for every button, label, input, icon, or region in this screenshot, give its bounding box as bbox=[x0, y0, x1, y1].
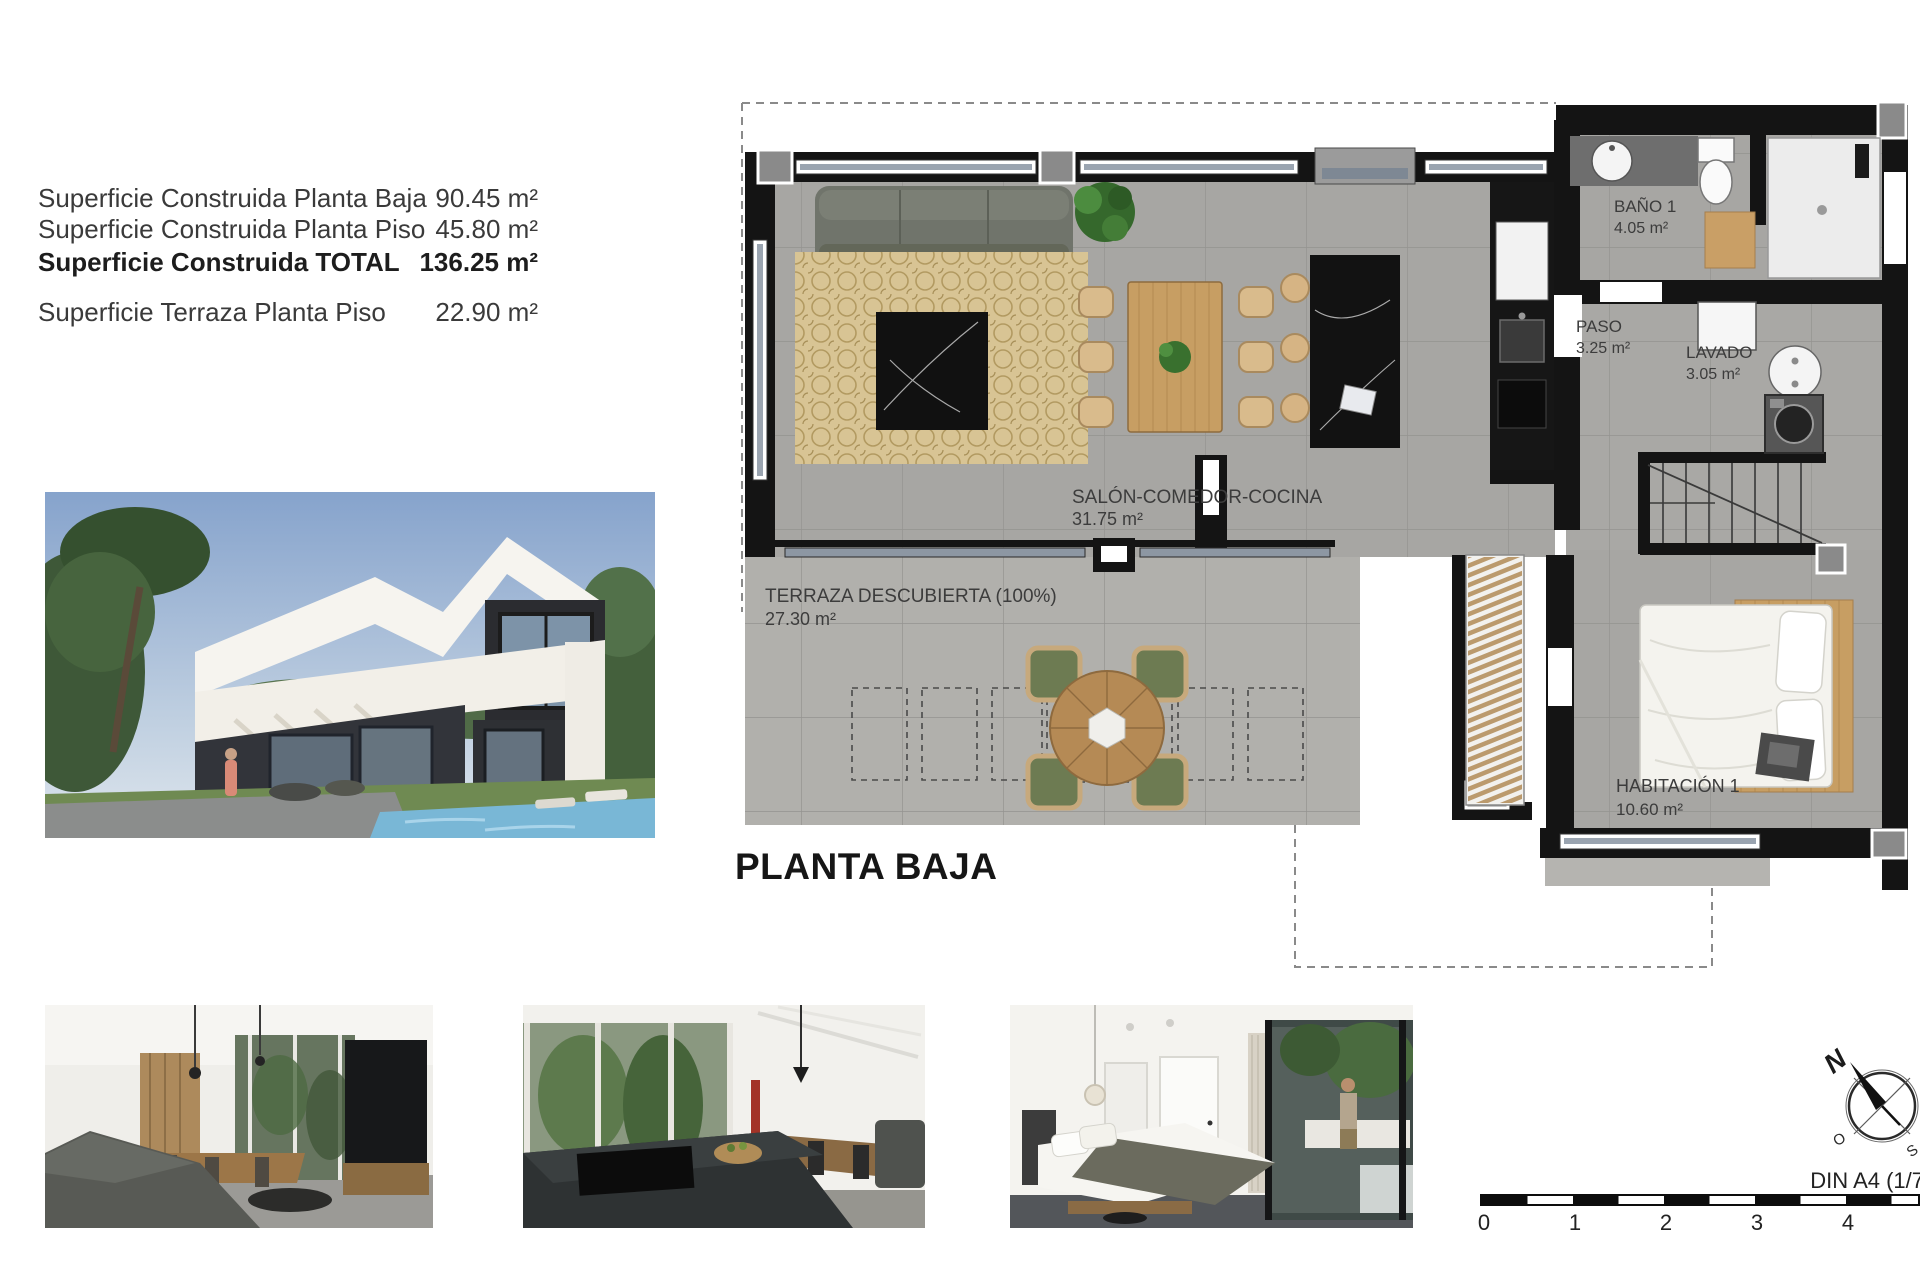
scale-tick: 2 bbox=[1660, 1210, 1672, 1236]
kitchen-photo bbox=[523, 1005, 925, 1228]
plan-title: PLANTA BAJA bbox=[735, 846, 997, 888]
compass-south-label: S bbox=[1904, 1141, 1920, 1161]
scale-bar: DIN A4 (1/7 0 1 2 3 4 bbox=[1480, 1168, 1920, 1238]
brochure-page: Superficie Construida Planta Baja 90.45 … bbox=[0, 0, 1920, 1280]
villa-exterior-illustration bbox=[45, 492, 655, 838]
surface-value: 136.25 m² bbox=[419, 247, 538, 278]
surface-label: Superficie Construida Planta Piso bbox=[38, 214, 425, 245]
compass-icon: N O S bbox=[1812, 1040, 1920, 1162]
room-area-paso: 3.25 m² bbox=[1576, 340, 1631, 357]
scale-tick: 0 bbox=[1478, 1210, 1490, 1236]
room-label-bano: BAÑO 1 bbox=[1614, 197, 1676, 216]
scale-bar-graphic bbox=[1480, 1194, 1920, 1206]
surface-label: Superficie Construida TOTAL bbox=[38, 247, 400, 278]
dining-table bbox=[1079, 282, 1273, 432]
room-label-salon: SALÓN-COMEDOR-COCINA bbox=[1072, 486, 1323, 508]
louver-screen bbox=[1466, 555, 1524, 805]
surface-table: Superficie Construida Planta Baja 90.45 … bbox=[38, 183, 538, 328]
table-row: Superficie Terraza Planta Piso 22.90 m² bbox=[38, 297, 538, 328]
room-label-lavado: LAVADO bbox=[1686, 343, 1752, 362]
scale-tick: 1 bbox=[1569, 1210, 1581, 1236]
table-row: Superficie Construida Planta Baja 90.45 … bbox=[38, 183, 538, 214]
living-room-illustration bbox=[45, 1005, 433, 1228]
surface-value: 45.80 m² bbox=[435, 214, 538, 245]
surface-value: 22.90 m² bbox=[435, 297, 538, 328]
room-label-habitacion: HABITACIÓN 1 bbox=[1616, 775, 1740, 796]
bedroom-illustration bbox=[1010, 1005, 1413, 1228]
coffee-table bbox=[876, 312, 988, 430]
compass-north-label: N bbox=[1818, 1043, 1852, 1079]
surface-label: Superficie Construida Planta Baja bbox=[38, 183, 427, 214]
room-area-terraza: 27.30 m² bbox=[765, 609, 836, 629]
table-row: Superficie Construida Planta Piso 45.80 … bbox=[38, 214, 538, 245]
kitchen-counter bbox=[1490, 182, 1554, 470]
surface-label: Superficie Terraza Planta Piso bbox=[38, 297, 386, 328]
kitchen-island bbox=[1281, 255, 1400, 448]
scale-tick: 4 bbox=[1842, 1210, 1854, 1236]
kitchen-illustration bbox=[523, 1005, 925, 1228]
living-room-photo bbox=[45, 1005, 433, 1228]
room-area-bano: 4.05 m² bbox=[1614, 220, 1669, 237]
compass-west-label: O bbox=[1830, 1129, 1849, 1150]
table-row-total: Superficie Construida TOTAL 136.25 m² bbox=[38, 247, 538, 278]
room-area-salon: 31.75 m² bbox=[1072, 509, 1143, 529]
surface-value: 90.45 m² bbox=[435, 183, 538, 214]
villa-exterior-photo bbox=[45, 492, 655, 838]
scale-tick: 3 bbox=[1751, 1210, 1763, 1236]
bedroom-furniture bbox=[1640, 600, 1853, 792]
room-area-habitacion: 10.60 m² bbox=[1616, 800, 1683, 819]
room-label-paso: PASO bbox=[1576, 317, 1622, 336]
scale-format-label: DIN A4 (1/7 bbox=[1810, 1168, 1920, 1194]
bedroom-photo bbox=[1010, 1005, 1413, 1228]
terrace-table-set bbox=[1028, 648, 1186, 808]
room-area-lavado: 3.05 m² bbox=[1686, 366, 1741, 383]
room-label-terraza: TERRAZA DESCUBIERTA (100%) bbox=[765, 586, 1057, 607]
